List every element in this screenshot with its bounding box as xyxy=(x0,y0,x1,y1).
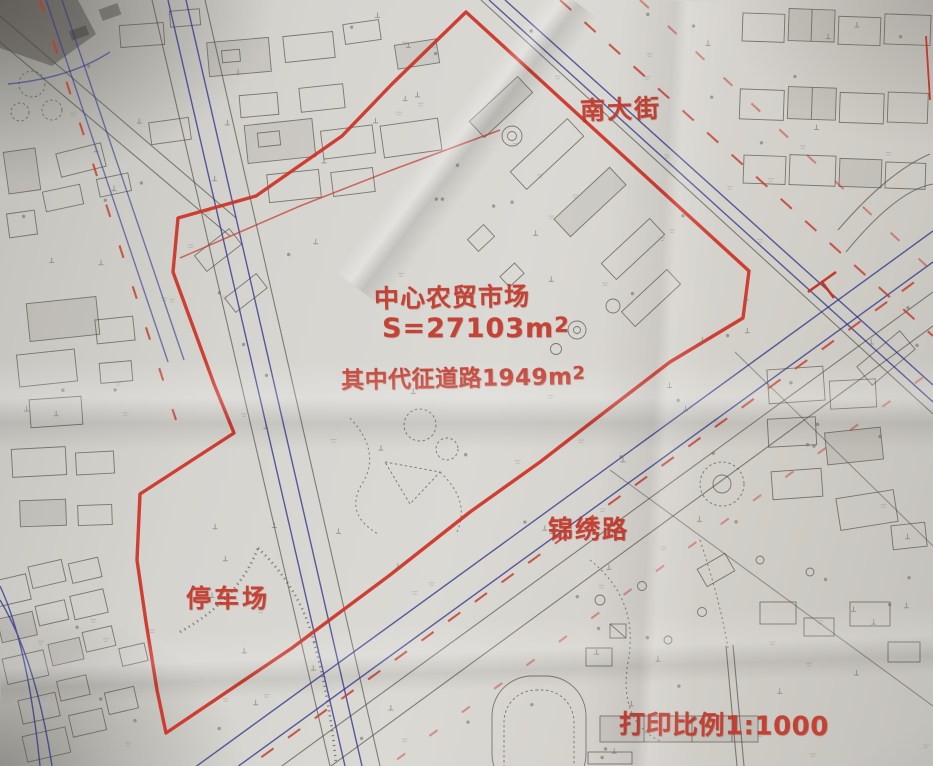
site-area-value: S=27103m xyxy=(382,313,554,344)
label-print-scale: 打印比例1:1000 xyxy=(619,704,829,743)
label-jinxiu-road: 锦绣路 xyxy=(548,510,629,546)
label-site-name: 中心农贸市场 xyxy=(374,277,531,316)
label-nandajie-street: 南大街 xyxy=(579,89,661,128)
label-parking-lot: 停车场 xyxy=(186,579,270,615)
road-dedication-superscript: 2 xyxy=(572,363,585,384)
label-site-area: S=27103m2 xyxy=(382,312,570,344)
site-area-superscript: 2 xyxy=(554,312,570,337)
road-dedication-value: 其中代征道路1949m xyxy=(341,364,573,394)
label-road-dedication: 其中代征道路1949m2 xyxy=(341,357,586,395)
scanned-site-plan-photo: 南大街 中心农贸市场 S=27103m2 其中代征道路1949m2 锦绣路 停车… xyxy=(0,0,933,766)
secondary-red-line xyxy=(180,130,500,258)
